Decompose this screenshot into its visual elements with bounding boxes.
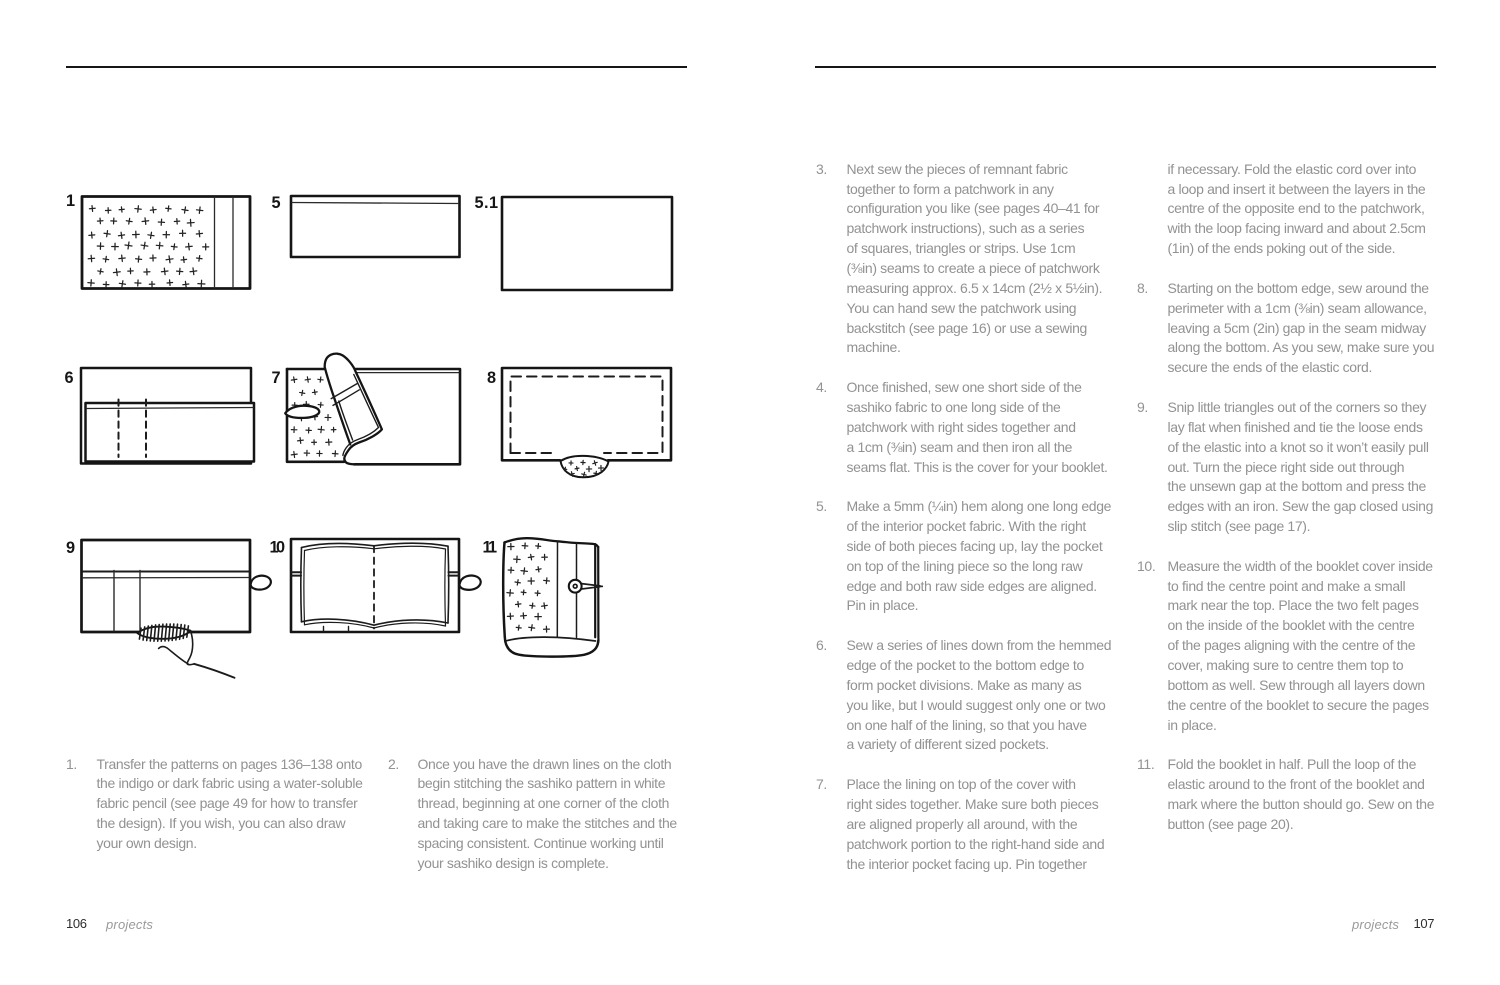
svg-text:5.1: 5.1 — [475, 194, 499, 212]
svg-text:7: 7 — [272, 369, 281, 387]
svg-text:10: 10 — [270, 539, 286, 557]
svg-text:8: 8 — [487, 369, 496, 387]
svg-text:1: 1 — [66, 192, 75, 210]
svg-text:5: 5 — [272, 194, 281, 212]
svg-text:11: 11 — [483, 539, 498, 557]
svg-text:9: 9 — [66, 539, 75, 557]
svg-text:6: 6 — [65, 369, 74, 387]
